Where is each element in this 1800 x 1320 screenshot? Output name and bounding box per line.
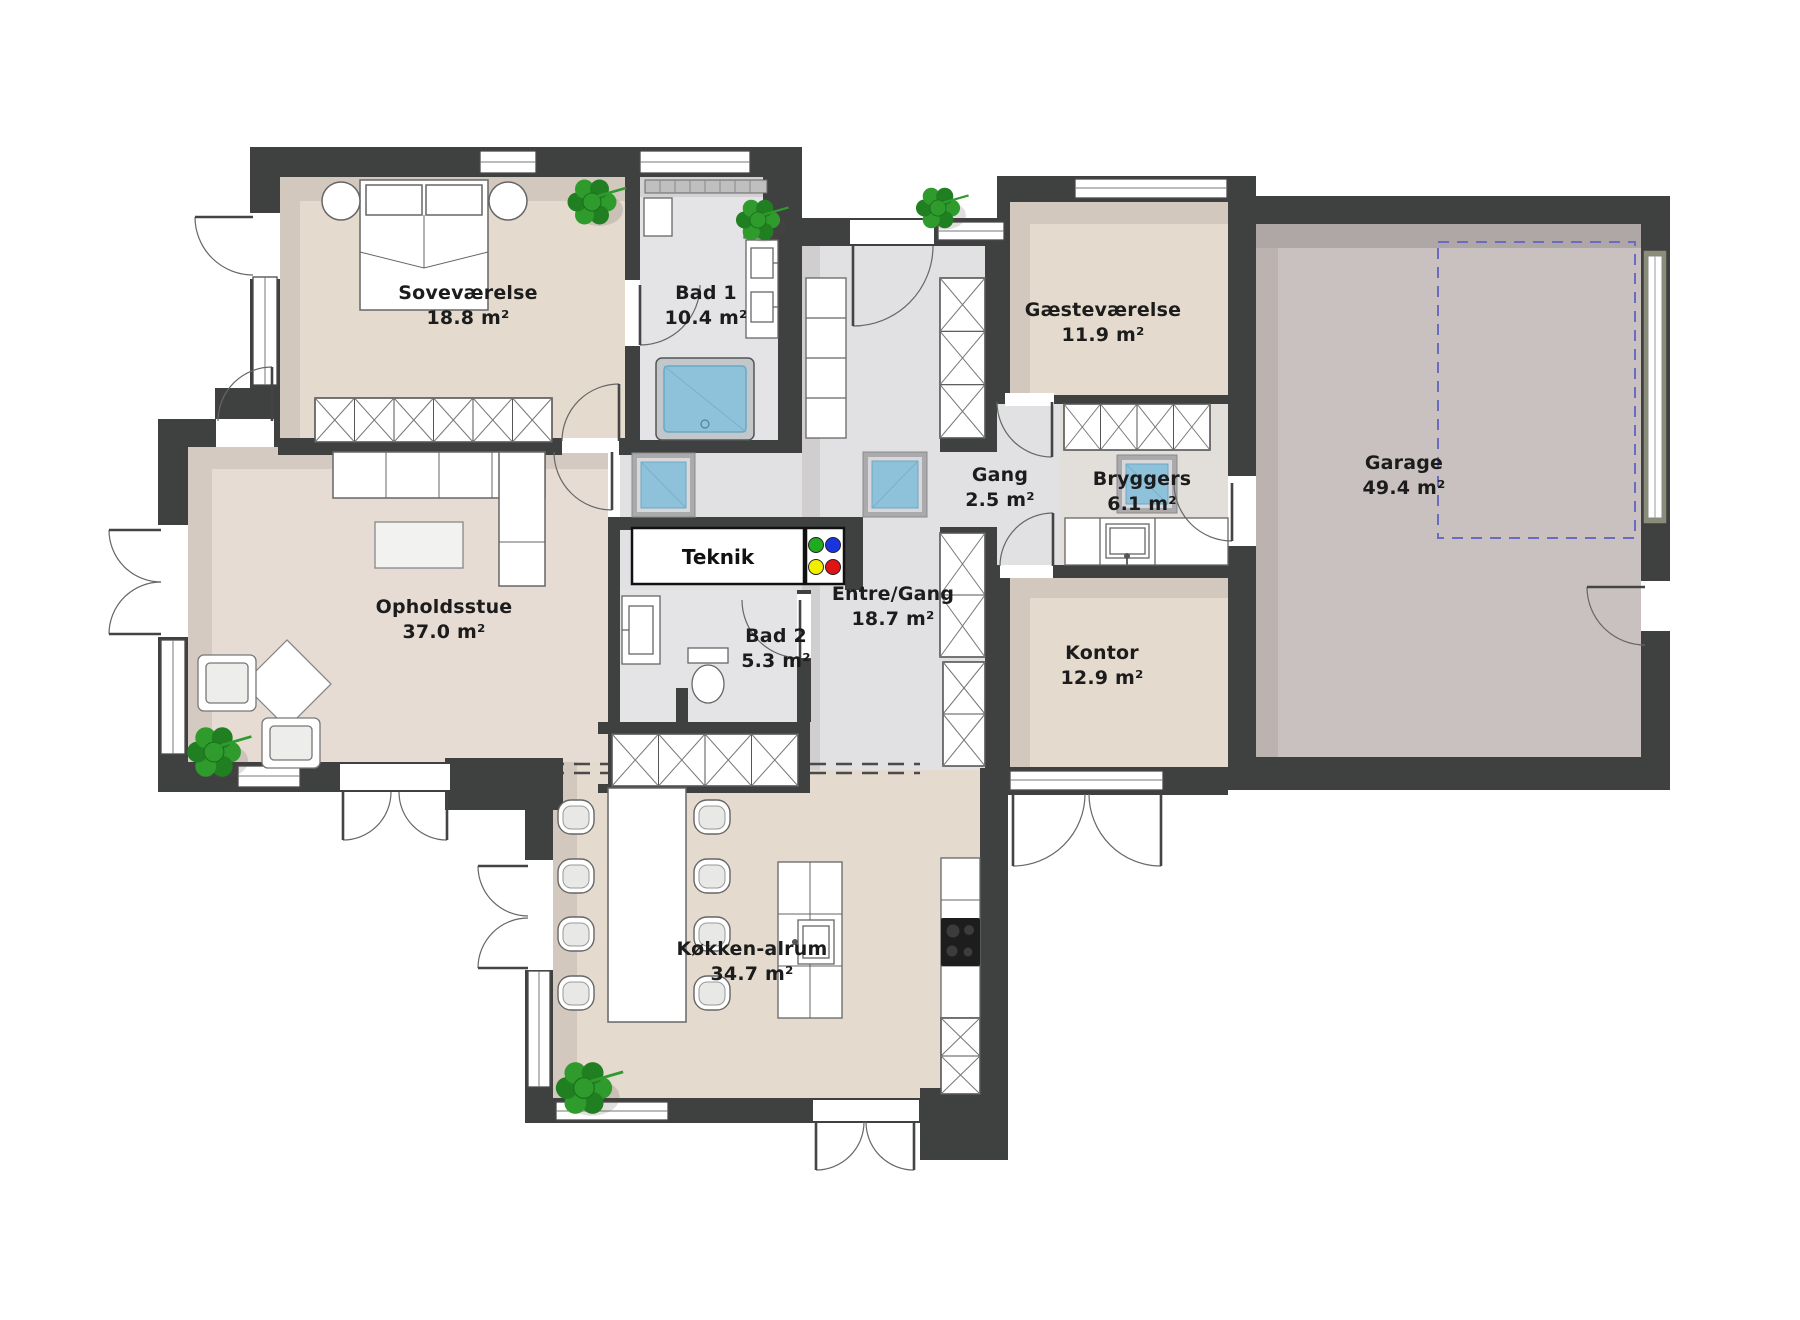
floor-plan: Soveværelse18.8 m² Bad 110.4 m² Gæstevær…	[0, 0, 1800, 1320]
wardrobe	[940, 278, 985, 438]
entry-shelf	[806, 278, 846, 438]
room-label-garage: Garage49.4 m²	[1362, 451, 1445, 501]
utility-counter	[1065, 518, 1228, 565]
room-label-bryggers: Bryggers6.1 m²	[1093, 467, 1192, 517]
room-label-teknik: Teknik	[682, 545, 754, 569]
floor-plan-drawing	[0, 0, 1800, 1320]
room-label-entre: Entre/Gang18.7 m²	[832, 582, 954, 632]
room-label-gang: Gang2.5 m²	[965, 463, 1035, 513]
plant-icon	[916, 188, 969, 230]
bedside-table	[489, 182, 527, 220]
room-label-koekken: Køkken-alrum34.7 m²	[677, 937, 828, 987]
sink-vanity	[622, 596, 660, 664]
room-label-sovevaerelse: Soveværelse18.8 m²	[398, 281, 537, 331]
wardrobe	[1064, 404, 1210, 450]
skylight	[632, 453, 695, 517]
washing-machine	[644, 198, 672, 236]
wardrobe	[612, 734, 798, 786]
skylight	[863, 452, 927, 517]
armchair	[198, 655, 256, 711]
garage-door	[1643, 250, 1667, 524]
dining-chair	[558, 976, 594, 1010]
room-label-kontor: Kontor12.9 m²	[1060, 641, 1143, 691]
wardrobe	[315, 398, 552, 442]
double-sink-vanity	[746, 240, 778, 338]
bedside-table	[322, 182, 360, 220]
cooktop	[941, 918, 980, 966]
room-label-bad1: Bad 110.4 m²	[664, 281, 747, 331]
room-label-bad2: Bad 25.3 m²	[741, 624, 811, 674]
dining-chair	[558, 859, 594, 893]
room-label-gaestevaerelse: Gæsteværelse11.9 m²	[1025, 298, 1181, 348]
room-label-opholdsstue: Opholdsstue37.0 m²	[376, 595, 513, 645]
coffee-table	[375, 522, 463, 568]
wardrobe	[943, 662, 985, 766]
bathtub	[656, 358, 754, 440]
dining-chair	[694, 859, 730, 893]
dining-table	[608, 788, 686, 1022]
radiator	[645, 180, 767, 193]
wardrobe	[941, 1018, 980, 1094]
dining-chair	[694, 800, 730, 834]
dining-chair	[558, 800, 594, 834]
armchair	[262, 718, 320, 768]
dining-chair	[558, 917, 594, 951]
